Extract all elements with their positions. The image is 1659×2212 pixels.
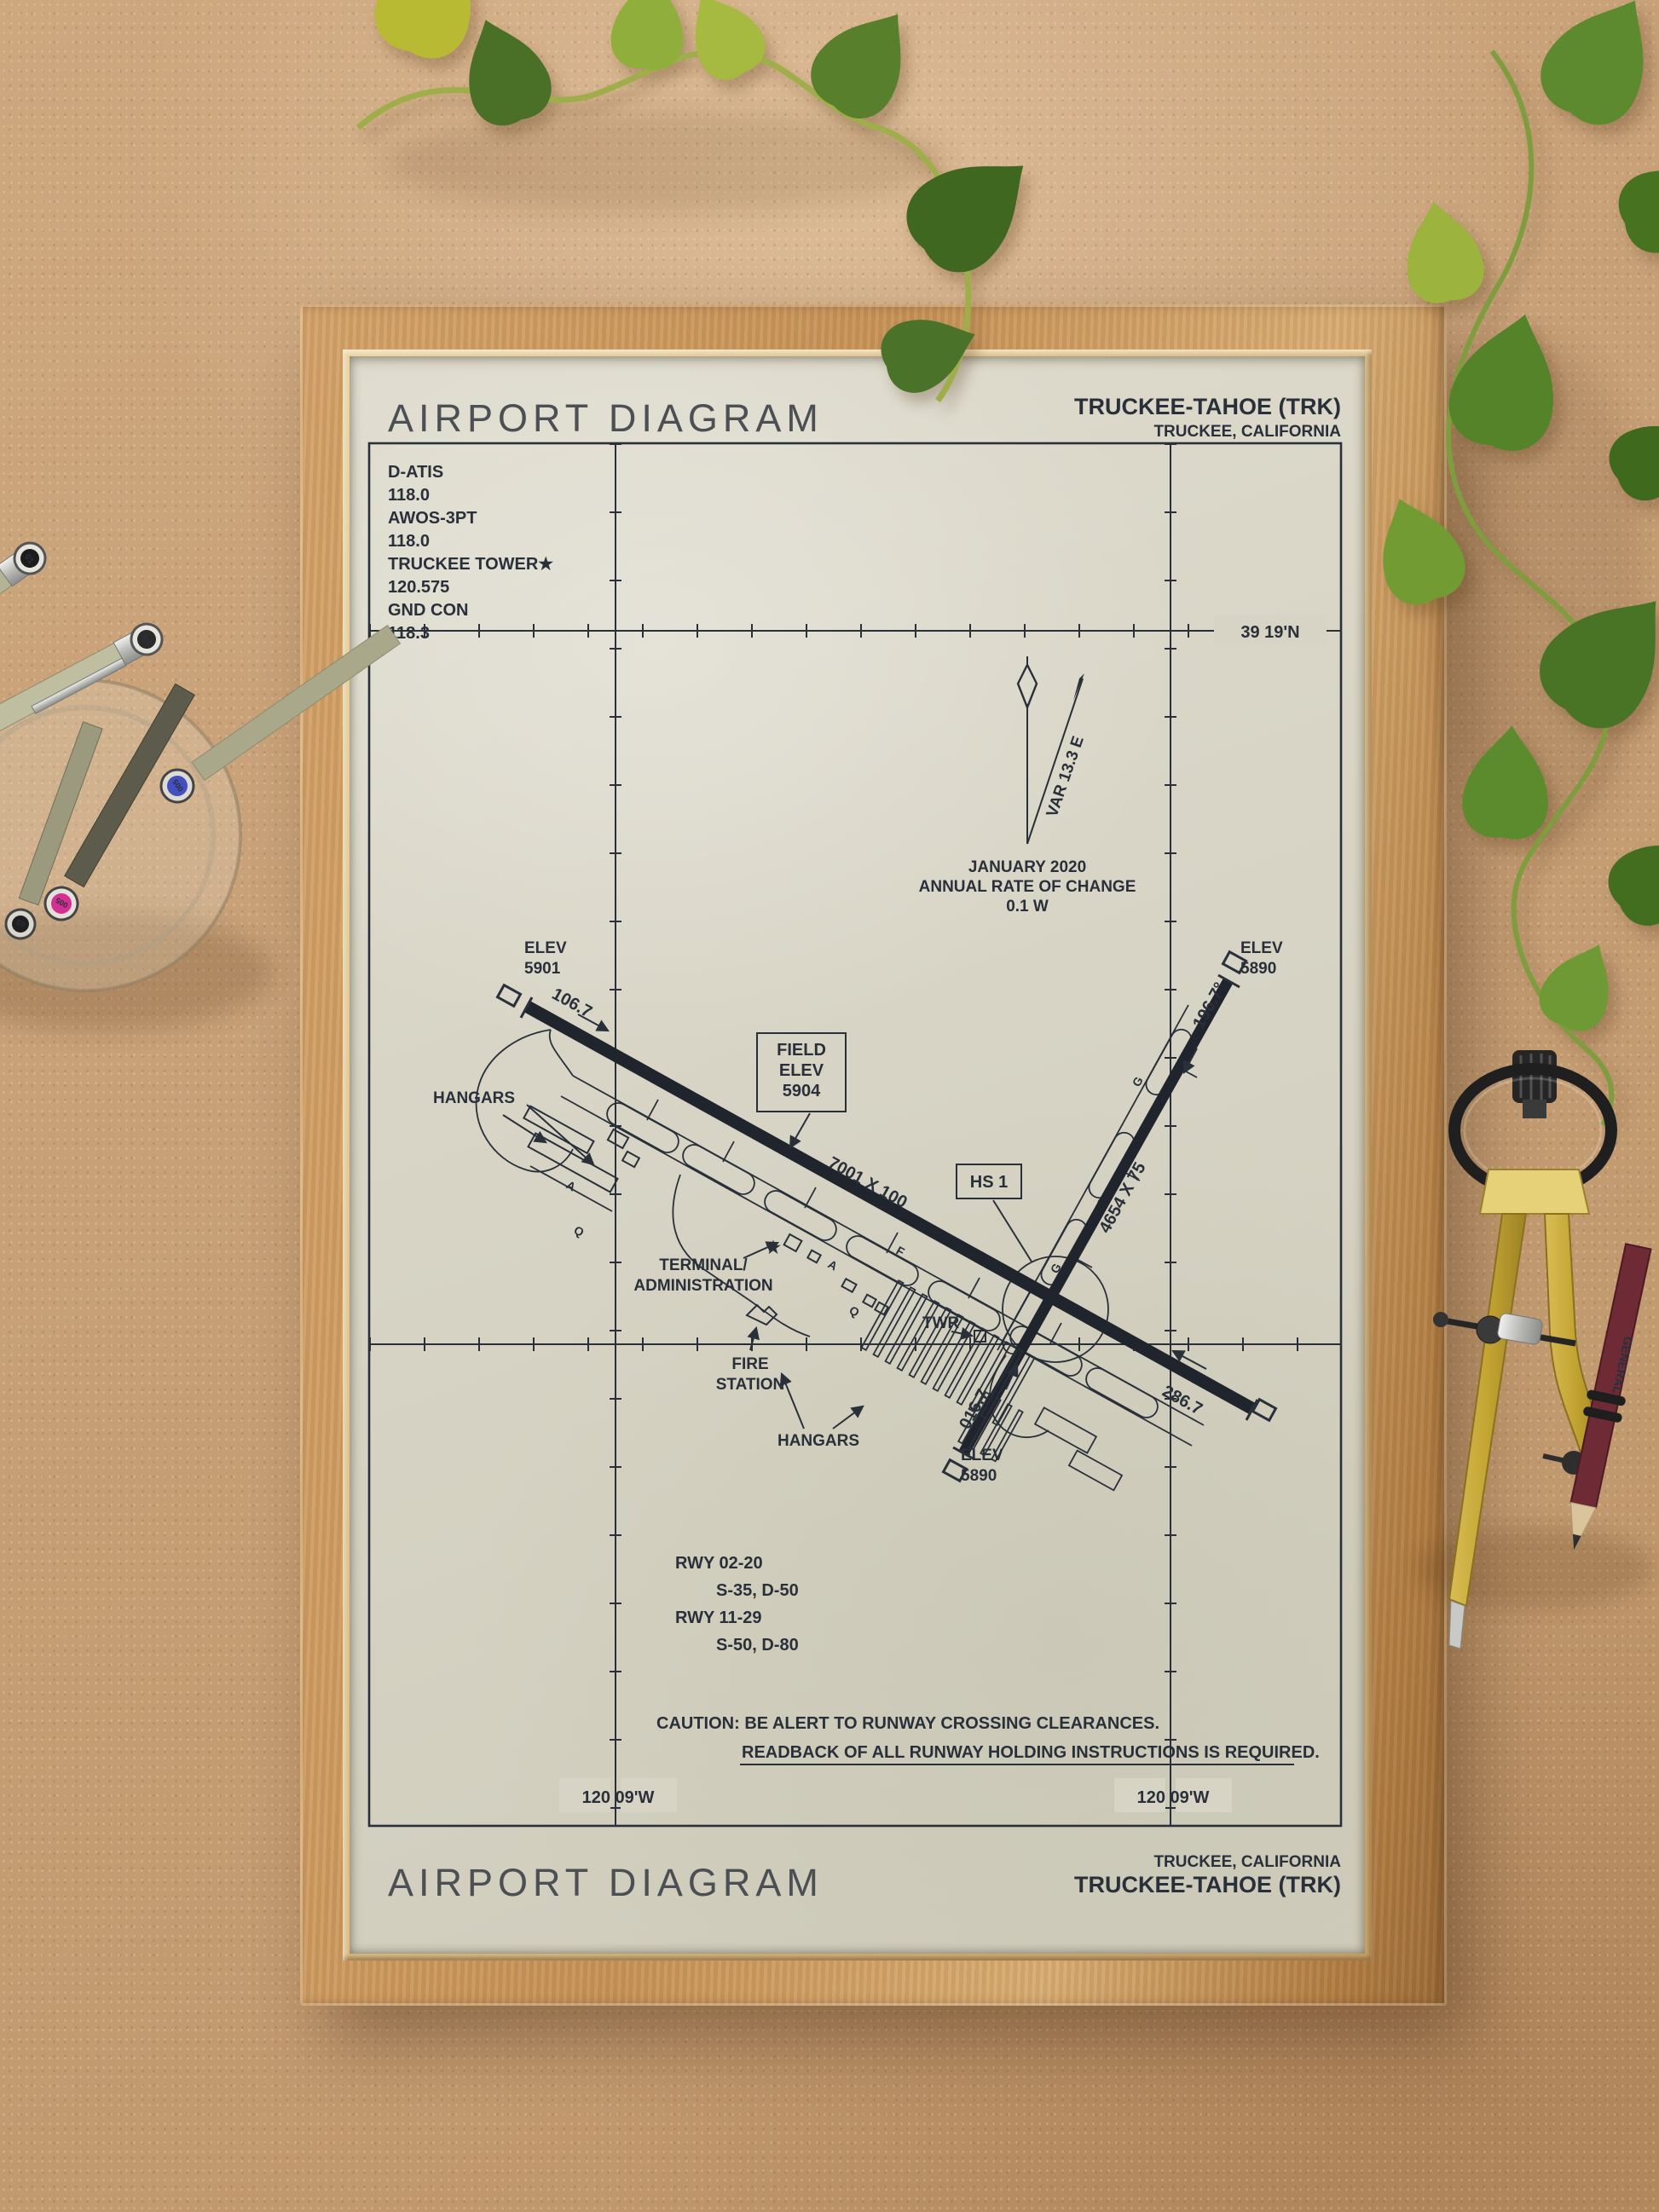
pencil-clip: [1586, 1389, 1626, 1406]
compass-left-leg: [1449, 1214, 1526, 1606]
comm-datis-freq: 118.0: [388, 486, 430, 505]
rwy-0220-title: RWY 02-20: [675, 1554, 763, 1573]
tower-label: TWR: [922, 1314, 960, 1332]
rwy02-elev: ELEV: [961, 1447, 1003, 1464]
magnetic-north-arrow: [1073, 673, 1084, 701]
compass-ring: [1454, 1069, 1611, 1192]
caution-line1: CAUTION: BE ALERT TO RUNWAY CROSSING CLE…: [656, 1714, 1159, 1733]
fire-station-label-line1: FIRE: [731, 1355, 768, 1373]
comm-awos-freq: 118.0: [388, 532, 430, 551]
poster-title-top: AIRPORT DIAGRAM: [388, 396, 824, 440]
pencil: GENERAL: [1555, 1243, 1658, 1555]
taxiway-letter-f: F: [894, 1244, 908, 1259]
pencil-tip: [1561, 1503, 1596, 1553]
pen-cap-label: 005: [171, 777, 185, 793]
rwy02-elev-value: 5890: [961, 1467, 997, 1485]
compass-thumbscrew: [1562, 1451, 1586, 1475]
fire-station-building: [747, 1305, 777, 1325]
rwy20-elev: ELEV: [1240, 939, 1283, 957]
rwy-0220-codes: S-35, D-50: [716, 1581, 799, 1600]
pencil-brand-text: GENERAL: [1610, 1335, 1635, 1395]
rwy-1129-title: RWY 11-29: [675, 1608, 762, 1627]
chart-border: [369, 443, 1341, 1826]
taxiway-letter-q: Q: [847, 1303, 862, 1320]
variation-note: ANNUAL RATE OF CHANGE: [919, 878, 1136, 896]
comm-ground-label: GND CON: [388, 601, 468, 620]
field-elev-line3: 5904: [783, 1082, 821, 1100]
taxiway-letter-a: A: [826, 1257, 841, 1273]
variation-date: JANUARY 2020: [968, 858, 1086, 876]
longitude-label-right: 120 09'W: [1137, 1788, 1210, 1807]
runway-data-block: RWY 02-20 S-35, D-50 RWY 11-29 S-50, D-8…: [675, 1554, 799, 1655]
terminal-label-line2: ADMINISTRATION: [633, 1277, 772, 1295]
compass-knob: [1512, 1050, 1557, 1103]
compass-adjust-rod: [1442, 1320, 1575, 1343]
compass-rose: VAR 13.3 E JANUARY 2020 ANNUAL RATE OF C…: [919, 656, 1136, 915]
true-north-arrow: [1018, 665, 1037, 707]
rwy-1129-codes: S-50, D-80: [716, 1636, 799, 1655]
compass-needle-tip: [1449, 1601, 1465, 1649]
compass-right-leg: [1545, 1214, 1604, 1458]
pen-cap-label: 01: [22, 552, 36, 566]
caution-line2: READBACK OF ALL RUNWAY HOLDING INSTRUCTI…: [742, 1743, 1320, 1762]
comm-tower-freq: 120.575: [388, 578, 449, 597]
hotspot-label: HS 1: [970, 1173, 1008, 1192]
micron-pen: 01 MICRON 005: [0, 537, 51, 749]
runway-11-29: [526, 1006, 1251, 1408]
compass-knurled-nut: [1477, 1316, 1504, 1343]
comm-tower-label: TRUCKEE TOWER★: [388, 555, 553, 574]
airport-diagram-svg: AIRPORT DIAGRAM TRUCKEE-TAHOE (TRK) TRUC…: [350, 356, 1365, 1954]
field-elev-line1: FIELD: [777, 1041, 826, 1060]
comm-ground-freq: 118.3: [388, 624, 430, 643]
pen-cap-label: 005: [54, 896, 69, 910]
drafting-compass: GENERAL: [1433, 1050, 1657, 1649]
poster-title-bottom: AIRPORT DIAGRAM: [388, 1861, 824, 1904]
hangars-nw-label: HANGARS: [433, 1089, 515, 1107]
micron-pen: 005: [0, 619, 167, 787]
runways: [498, 952, 1276, 1481]
caution-note: CAUTION: BE ALERT TO RUNWAY CROSSING CLE…: [656, 1714, 1320, 1764]
rwy20-elev-value: 5890: [1240, 960, 1276, 978]
pen-cap-label: 005: [139, 632, 153, 647]
photo-scene: AIRPORT DIAGRAM TRUCKEE-TAHOE (TRK) TRUC…: [0, 0, 1659, 2212]
field-elev-line2: ELEV: [779, 1061, 824, 1080]
fire-station-label-line2: STATION: [716, 1376, 785, 1394]
micron-pen: 005: [39, 681, 199, 926]
terminal-label-line1: TERMINAL/: [659, 1256, 748, 1274]
airport-city-top: TRUCKEE, CALIFORNIA: [1153, 423, 1341, 441]
hangars-s-label: HANGARS: [777, 1432, 859, 1450]
comm-awos-label: AWOS-3PT: [388, 509, 477, 528]
taxiway-letter-q: Q: [572, 1223, 587, 1239]
compass-hinge: [1480, 1170, 1589, 1214]
airport-diagram-poster: AIRPORT DIAGRAM TRUCKEE-TAHOE (TRK) TRUC…: [350, 356, 1365, 1954]
micron-pen: 03: [2, 720, 107, 943]
airport-name-top: TRUCKEE-TAHOE (TRK): [1074, 394, 1341, 419]
rwy20-heading: 196.7°: [1189, 979, 1229, 1031]
airport-city-bottom: TRUCKEE, CALIFORNIA: [1153, 1853, 1341, 1871]
rwy11-elev-value: 5901: [524, 960, 561, 978]
variation-rate: 0.1 W: [1006, 898, 1049, 915]
comm-frequencies: D-ATIS 118.0 AWOS-3PT 118.0 TRUCKEE TOWE…: [388, 463, 553, 643]
airport-name-bottom: TRUCKEE-TAHOE (TRK): [1074, 1872, 1341, 1897]
rwy11-elev: ELEV: [524, 939, 567, 957]
latitude-label: 39 19'N: [1240, 623, 1299, 642]
longitude-label-left: 120 09'W: [582, 1788, 655, 1807]
pen-cap-label: 03: [15, 918, 26, 929]
comm-datis-label: D-ATIS: [388, 463, 443, 482]
graticule: 39 19'N 120 09'W 120 09'W: [369, 443, 1341, 1826]
